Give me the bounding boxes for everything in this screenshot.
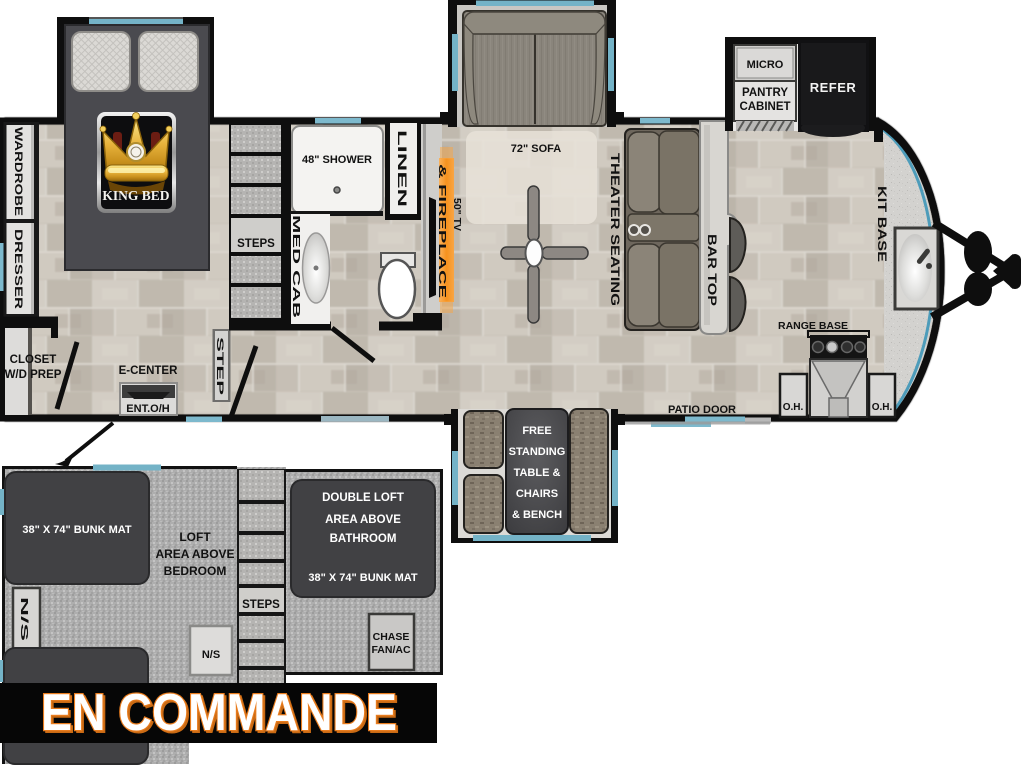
svg-text:N/S: N/S: [18, 597, 29, 642]
svg-text:CHASE: CHASE: [373, 631, 410, 643]
svg-text:KING BED: KING BED: [102, 188, 169, 203]
svg-text:MED CAB: MED CAB: [290, 215, 302, 319]
svg-text:FAN/AC: FAN/AC: [371, 644, 411, 656]
svg-text:REFER: REFER: [810, 80, 857, 95]
svg-text:PANTRY: PANTRY: [742, 87, 788, 99]
svg-text:W/D PREP: W/D PREP: [5, 369, 62, 381]
svg-text:CLOSET: CLOSET: [10, 354, 57, 366]
svg-text:BEDROOM: BEDROOM: [164, 564, 227, 578]
svg-text:& FIREPLACE: & FIREPLACE: [436, 164, 448, 298]
svg-text:STEPS: STEPS: [242, 599, 280, 611]
svg-text:STEPS: STEPS: [237, 238, 275, 250]
svg-text:AREA ABOVE: AREA ABOVE: [325, 514, 401, 526]
svg-text:N/S: N/S: [202, 649, 220, 661]
svg-text:72" SOFA: 72" SOFA: [511, 143, 562, 155]
svg-text:50" TV: 50" TV: [451, 198, 463, 231]
svg-text:38" X 74" BUNK MAT: 38" X 74" BUNK MAT: [308, 572, 418, 584]
svg-text:LINEN: LINEN: [395, 130, 407, 207]
svg-text:THEATER SEATING: THEATER SEATING: [608, 153, 622, 306]
svg-text:KIT BASE: KIT BASE: [875, 186, 887, 262]
svg-text:DOUBLE LOFT: DOUBLE LOFT: [322, 492, 404, 504]
svg-text:STEP: STEP: [214, 337, 225, 397]
svg-text:48" SHOWER: 48" SHOWER: [302, 154, 372, 166]
svg-text:DRESSER: DRESSER: [12, 229, 24, 309]
svg-text:BAR TOP: BAR TOP: [705, 234, 717, 306]
svg-text:EN COMMANDE: EN COMMANDE: [41, 684, 397, 742]
svg-text:BATHROOM: BATHROOM: [330, 533, 397, 545]
svg-text:FREE: FREE: [522, 425, 551, 437]
svg-text:MICRO: MICRO: [747, 59, 784, 71]
svg-text:O.H.: O.H.: [783, 402, 804, 413]
svg-text:LOFT: LOFT: [179, 530, 211, 544]
svg-text:TABLE &: TABLE &: [514, 467, 561, 479]
svg-text:O.H.: O.H.: [872, 402, 893, 413]
svg-text:38" X 74" BUNK MAT: 38" X 74" BUNK MAT: [22, 524, 132, 536]
svg-text:ENT.O/H: ENT.O/H: [126, 403, 169, 415]
svg-text:CHAIRS: CHAIRS: [516, 488, 558, 500]
svg-text:AREA ABOVE: AREA ABOVE: [155, 547, 234, 561]
svg-text:STANDING: STANDING: [509, 446, 566, 458]
svg-text:& BENCH: & BENCH: [512, 509, 562, 521]
svg-text:WARDROBE: WARDROBE: [12, 127, 24, 216]
svg-text:CABINET: CABINET: [739, 101, 790, 113]
svg-text:PATIO DOOR: PATIO DOOR: [668, 404, 736, 416]
svg-text:E-CENTER: E-CENTER: [119, 365, 178, 377]
